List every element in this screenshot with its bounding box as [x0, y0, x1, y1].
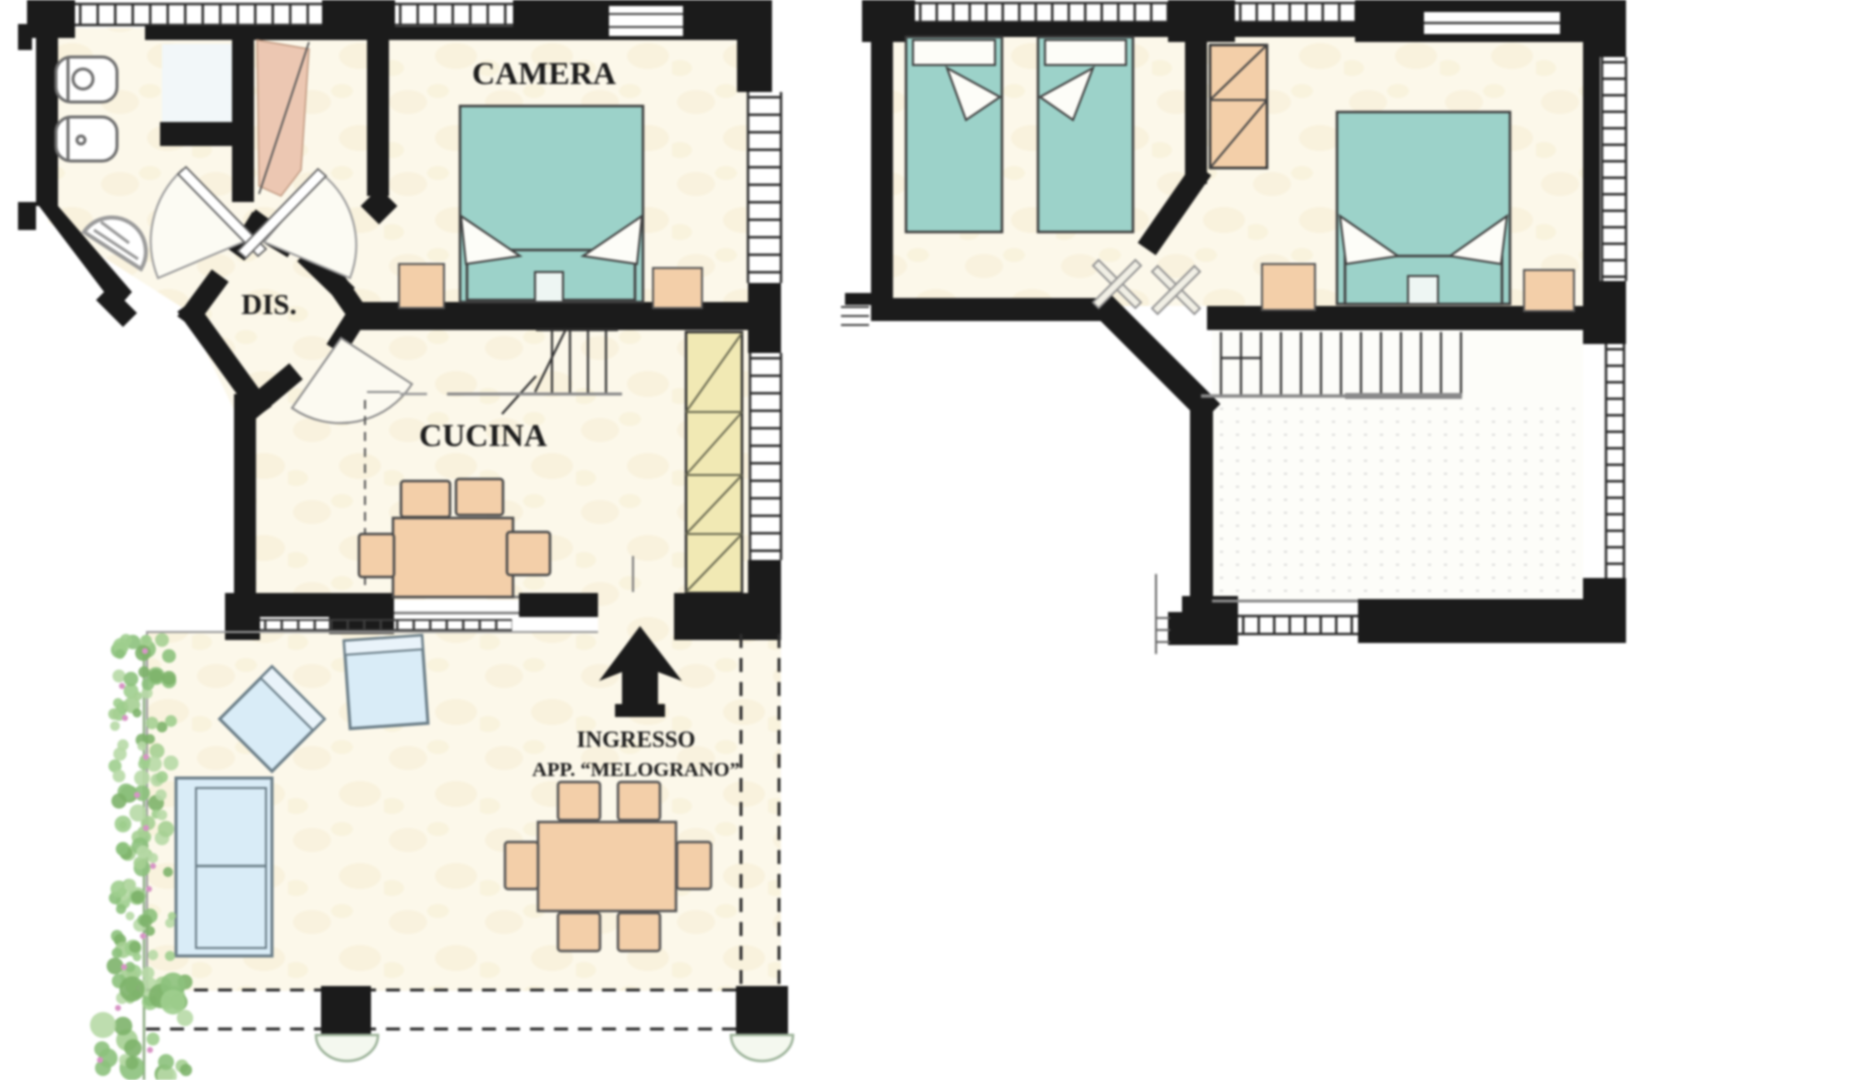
svg-text:CAMERA: CAMERA	[472, 55, 616, 91]
svg-text:INGRESSO: INGRESSO	[577, 727, 696, 752]
svg-text:APP. “MELOGRANO”: APP. “MELOGRANO”	[532, 759, 740, 781]
svg-text:CUCINA: CUCINA	[419, 417, 547, 453]
svg-text:DIS.: DIS.	[241, 289, 297, 321]
